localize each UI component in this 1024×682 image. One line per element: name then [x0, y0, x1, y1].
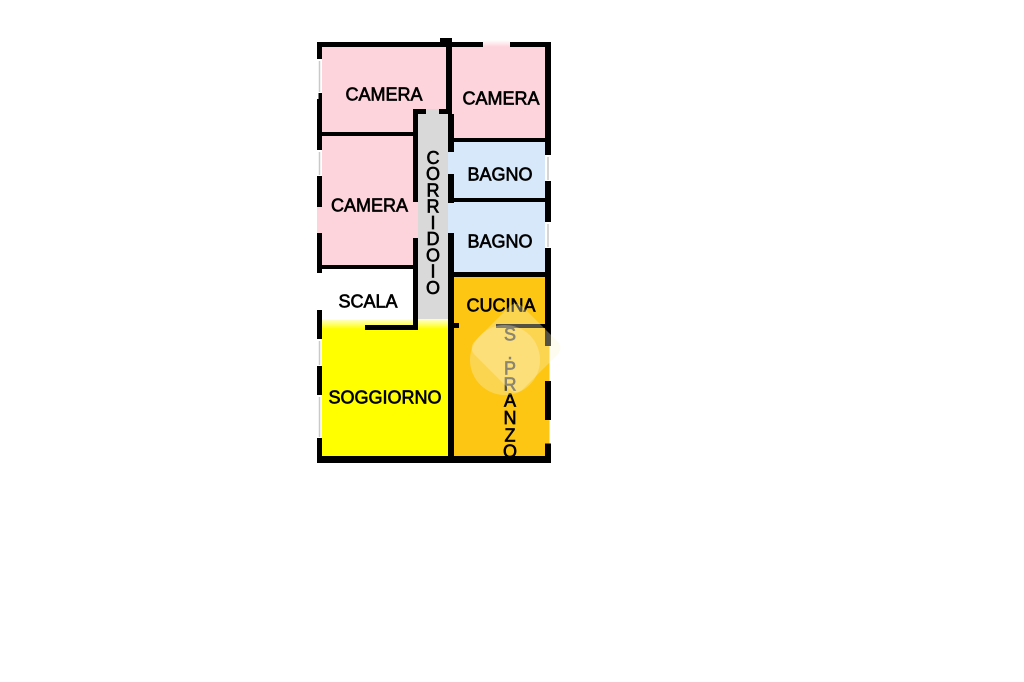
svg-text:CAMERA: CAMERA [331, 196, 408, 216]
svg-text:BAGNO: BAGNO [467, 232, 532, 252]
svg-text:CAMERA: CAMERA [462, 89, 539, 109]
svg-text:O: O [503, 442, 517, 462]
svg-text:CAMERA: CAMERA [345, 85, 422, 105]
svg-text:SOGGIORNO: SOGGIORNO [328, 388, 441, 408]
svg-text:O: O [426, 278, 440, 298]
svg-text:BAGNO: BAGNO [467, 165, 532, 185]
svg-text:SCALA: SCALA [338, 292, 397, 312]
